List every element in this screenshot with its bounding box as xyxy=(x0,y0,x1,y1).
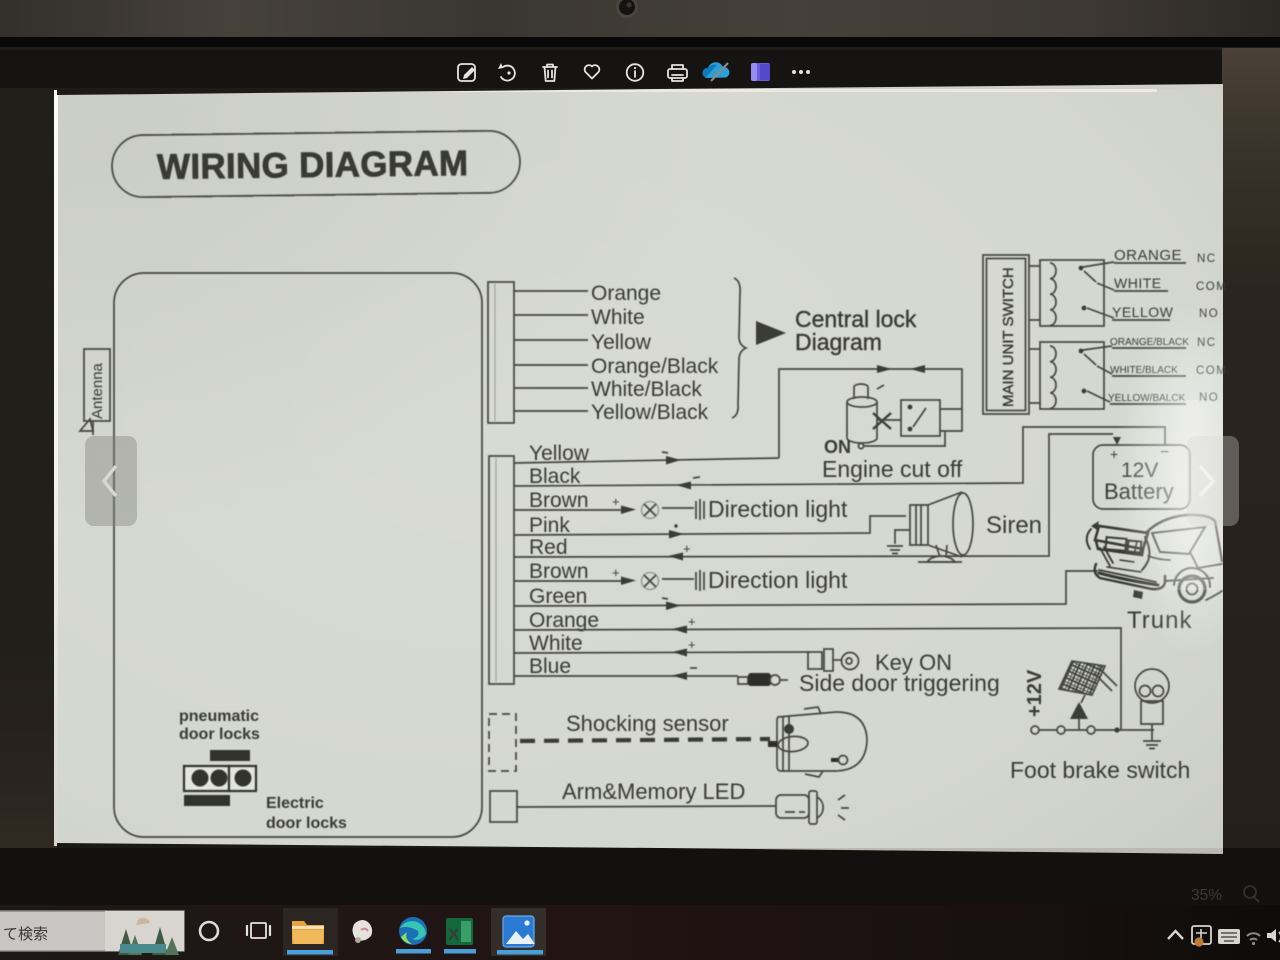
svg-text:Foot brake switch: Foot brake switch xyxy=(1010,757,1190,783)
svg-text:Brown: Brown xyxy=(529,489,589,512)
svg-text:X: X xyxy=(448,925,460,944)
svg-text:+: + xyxy=(683,541,691,556)
svg-text:Brown: Brown xyxy=(529,560,589,583)
svg-text:door locks: door locks xyxy=(179,726,260,743)
svg-text:Siren: Siren xyxy=(986,512,1042,539)
svg-text:Arm&Memory LED: Arm&Memory LED xyxy=(562,779,745,804)
svg-text:door locks: door locks xyxy=(266,815,347,832)
svg-text:Green: Green xyxy=(529,585,587,608)
svg-text:White/Black: White/Black xyxy=(591,378,702,401)
svg-text:Engine cut off: Engine cut off xyxy=(822,456,963,482)
svg-text:Yellow: Yellow xyxy=(591,331,652,354)
svg-text:WIRING DIAGRAM: WIRING DIAGRAM xyxy=(157,144,469,187)
svg-text:Black: Black xyxy=(529,465,581,488)
svg-text:Blue: Blue xyxy=(529,655,571,678)
svg-text:NC: NC xyxy=(1197,253,1217,265)
svg-text:+: + xyxy=(688,637,696,652)
svg-text:+12V: +12V xyxy=(1024,669,1046,717)
svg-text:ORANGE: ORANGE xyxy=(1114,247,1182,264)
svg-text:Orange/Black: Orange/Black xyxy=(591,355,719,378)
svg-text:Direction light: Direction light xyxy=(708,567,848,593)
svg-text:COM: COM xyxy=(1196,281,1227,293)
svg-text:Shocking sensor: Shocking sensor xyxy=(566,711,729,736)
svg-text:ON: ON xyxy=(824,437,851,457)
svg-text:Side door triggering: Side door triggering xyxy=(799,670,1000,696)
svg-text:Diagram: Diagram xyxy=(795,329,882,355)
svg-text:Antenna: Antenna xyxy=(89,362,106,419)
svg-text:pneumatic: pneumatic xyxy=(179,708,259,725)
svg-text:+: + xyxy=(612,494,620,509)
svg-text:Orange: Orange xyxy=(591,282,661,305)
svg-text:Yellow/Black: Yellow/Black xyxy=(591,401,709,424)
svg-text:WHITE: WHITE xyxy=(1114,275,1162,291)
svg-text:て検索: て検索 xyxy=(3,926,48,943)
svg-text:35%: 35% xyxy=(1191,887,1222,904)
svg-text:White: White xyxy=(529,632,583,655)
svg-text:+: + xyxy=(688,614,696,629)
svg-text:Orange: Orange xyxy=(529,609,599,632)
svg-text:MAIN UNIT SWITCH: MAIN UNIT SWITCH xyxy=(1000,267,1017,407)
svg-text:White: White xyxy=(591,306,645,329)
svg-text:Pink: Pink xyxy=(529,514,570,537)
svg-text:Red: Red xyxy=(529,536,568,559)
svg-text:Electric: Electric xyxy=(266,795,324,812)
svg-text:+: + xyxy=(612,565,620,580)
svg-text:Direction light: Direction light xyxy=(708,496,848,522)
